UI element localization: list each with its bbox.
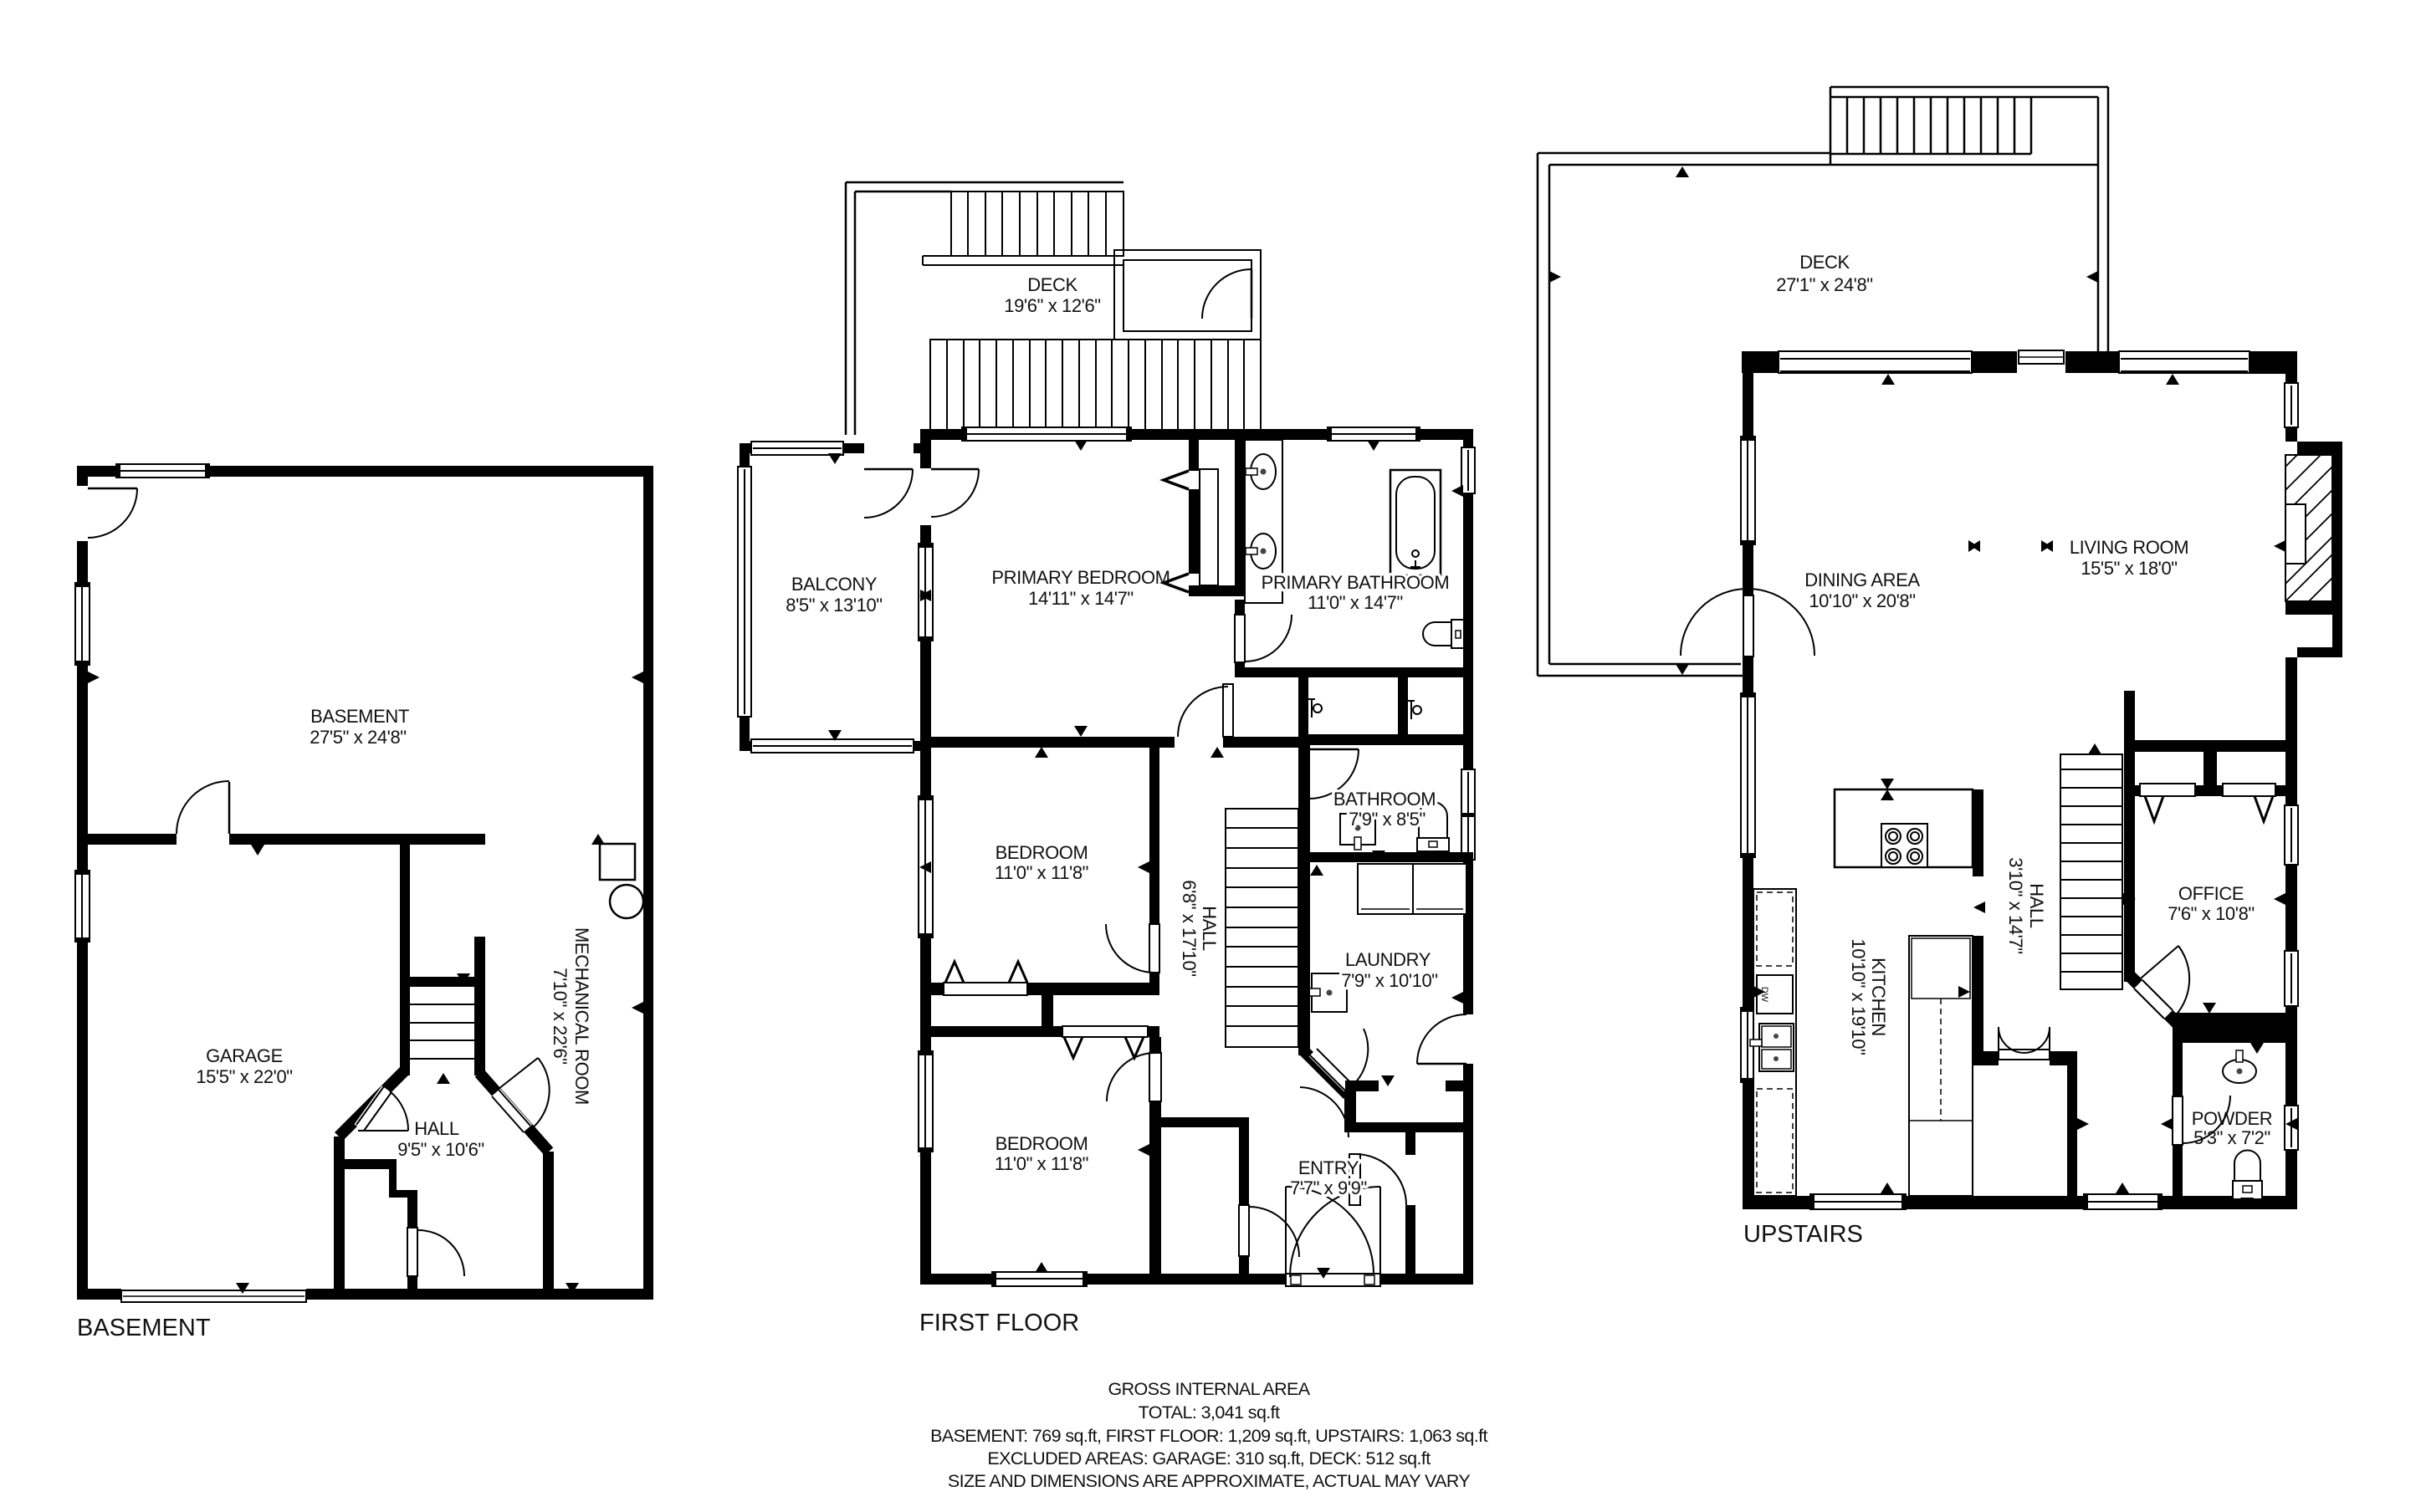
- svg-text:7'9" x 10'10": 7'9" x 10'10": [1341, 970, 1437, 991]
- svg-text:LAUNDRY: LAUNDRY: [1345, 949, 1431, 970]
- svg-text:8'5" x 13'10": 8'5" x 13'10": [786, 595, 882, 616]
- svg-text:DECK: DECK: [1799, 252, 1850, 273]
- svg-text:10'10" x 19'10": 10'10" x 19'10": [1848, 938, 1869, 1055]
- svg-text:BALCONY: BALCONY: [791, 574, 878, 595]
- svg-text:SIZE AND DIMENSIONS ARE APPROX: SIZE AND DIMENSIONS ARE APPROXIMATE, ACT…: [948, 1471, 1471, 1491]
- svg-text:HALL: HALL: [1199, 906, 1220, 951]
- svg-text:7'9" x 8'5": 7'9" x 8'5": [1349, 809, 1425, 830]
- svg-text:BASEMENT: BASEMENT: [310, 706, 409, 727]
- svg-text:27'5" x 24'8": 27'5" x 24'8": [310, 727, 406, 748]
- svg-text:DINING AREA: DINING AREA: [1804, 570, 1920, 590]
- svg-text:KITCHEN: KITCHEN: [1868, 958, 1889, 1036]
- svg-text:7'6" x 10'8": 7'6" x 10'8": [2168, 903, 2255, 924]
- svg-text:HALL: HALL: [414, 1118, 459, 1139]
- svg-text:PRIMARY BATHROOM: PRIMARY BATHROOM: [1262, 572, 1450, 593]
- svg-text:11'0" x 11'8": 11'0" x 11'8": [995, 862, 1088, 883]
- svg-text:GROSS INTERNAL AREA: GROSS INTERNAL AREA: [1108, 1379, 1310, 1399]
- svg-text:BASEMENT: BASEMENT: [77, 1315, 211, 1341]
- svg-text:BATHROOM: BATHROOM: [1333, 789, 1436, 810]
- svg-text:11'0" x 11'8": 11'0" x 11'8": [995, 1153, 1088, 1174]
- svg-text:ENTRY: ENTRY: [1298, 1157, 1359, 1178]
- svg-text:UPSTAIRS: UPSTAIRS: [1743, 1221, 1863, 1248]
- svg-text:DW: DW: [1759, 987, 1769, 1003]
- svg-text:3'10" x 14'7": 3'10" x 14'7": [2005, 857, 2026, 953]
- svg-text:7'7" x 9'9": 7'7" x 9'9": [1290, 1177, 1367, 1198]
- svg-text:TOTAL: 3,041 sq.ft: TOTAL: 3,041 sq.ft: [1139, 1402, 1280, 1423]
- svg-text:10'10" x 20'8": 10'10" x 20'8": [1809, 590, 1915, 611]
- svg-text:6'8" x 17'10": 6'8" x 17'10": [1179, 880, 1200, 976]
- svg-text:OFFICE: OFFICE: [2178, 883, 2244, 904]
- svg-text:PRIMARY BEDROOM: PRIMARY BEDROOM: [991, 567, 1170, 588]
- svg-text:EXCLUDED AREAS: GARAGE: 310 sq: EXCLUDED AREAS: GARAGE: 310 sq.ft, DECK:…: [987, 1448, 1431, 1469]
- svg-text:HALL: HALL: [2026, 883, 2047, 928]
- svg-text:MECHANICAL ROOM: MECHANICAL ROOM: [571, 927, 592, 1105]
- svg-text:LIVING ROOM: LIVING ROOM: [2070, 537, 2188, 558]
- svg-text:9'5" x 10'6": 9'5" x 10'6": [397, 1139, 484, 1160]
- svg-text:POWDER: POWDER: [2192, 1108, 2273, 1129]
- svg-text:DECK: DECK: [1027, 274, 1077, 295]
- svg-text:14'11" x 14'7": 14'11" x 14'7": [1028, 588, 1134, 609]
- svg-text:27'1" x 24'8": 27'1" x 24'8": [1776, 274, 1872, 295]
- svg-text:11'0" x 14'7": 11'0" x 14'7": [1308, 592, 1403, 613]
- svg-text:BEDROOM: BEDROOM: [996, 842, 1088, 863]
- svg-text:FIRST FLOOR: FIRST FLOOR: [919, 1310, 1079, 1336]
- svg-text:BASEMENT: 769 sq.ft, FIRST FLO: BASEMENT: 769 sq.ft, FIRST FLOOR: 1,209 …: [930, 1426, 1487, 1446]
- svg-text:15'5" x 22'0": 15'5" x 22'0": [196, 1066, 292, 1087]
- svg-text:7'10" x 22'6": 7'10" x 22'6": [550, 968, 571, 1064]
- svg-text:15'5" x 18'0": 15'5" x 18'0": [2081, 558, 2177, 579]
- svg-text:GARAGE: GARAGE: [206, 1045, 283, 1066]
- svg-text:19'6" x 12'6": 19'6" x 12'6": [1004, 295, 1100, 316]
- svg-text:BEDROOM: BEDROOM: [996, 1133, 1088, 1154]
